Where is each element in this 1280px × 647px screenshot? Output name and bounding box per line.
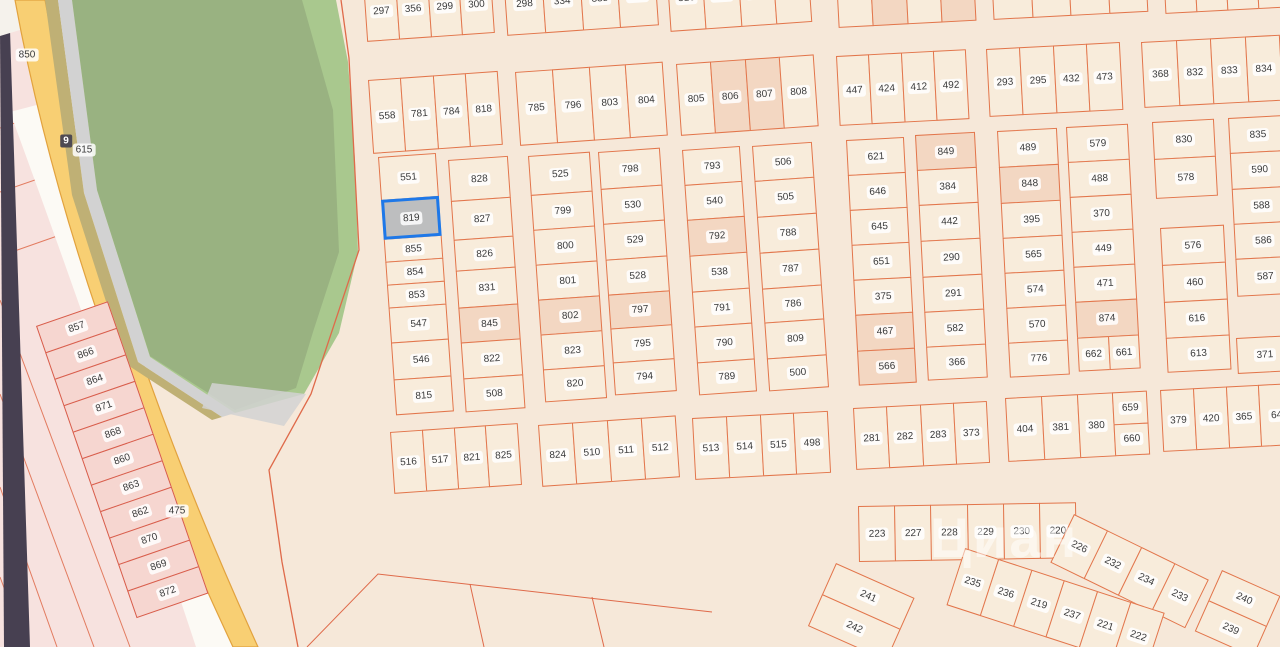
- plot-797[interactable]: 797: [608, 290, 672, 329]
- block-r2a: 558781784818: [368, 71, 503, 154]
- plot-unlabeled[interactable]: [990, 0, 1033, 20]
- plot-380[interactable]: 380: [1076, 392, 1116, 458]
- plot-551[interactable]: 551: [378, 153, 439, 201]
- plot-label: 510: [580, 445, 604, 460]
- plot-label: 833: [1218, 63, 1241, 77]
- plot-492[interactable]: 492: [933, 49, 970, 121]
- plot-786[interactable]: 786: [762, 284, 824, 323]
- plot-label: 233: [1167, 585, 1193, 607]
- plot-824[interactable]: 824: [538, 423, 577, 487]
- plot-223[interactable]: 223: [858, 505, 896, 562]
- plot-576[interactable]: 576: [1160, 225, 1226, 266]
- plot-613[interactable]: 613: [1166, 334, 1232, 372]
- plot-label: 281: [860, 431, 883, 445]
- plot-label: 229: [974, 525, 997, 538]
- plot-432[interactable]: 432: [1052, 44, 1090, 114]
- plot-546[interactable]: 546: [391, 339, 452, 381]
- plot-316[interactable]: 316: [666, 0, 707, 32]
- plot-label: 803: [598, 95, 622, 110]
- plot-796[interactable]: 796: [552, 67, 595, 143]
- plot-label: 514: [733, 439, 756, 453]
- plot-label: 785: [525, 100, 549, 115]
- block-c5r: 579488370449471874662661: [1066, 124, 1141, 372]
- plot-290[interactable]: 290: [921, 238, 983, 278]
- plot-label: 662: [1082, 347, 1105, 361]
- block-c3r: 506505788787786809500: [752, 142, 829, 392]
- plot-64[interactable]: 64: [1258, 383, 1280, 447]
- plot-label: 222: [1126, 626, 1152, 645]
- plot-849[interactable]: 849: [915, 132, 977, 171]
- plot-label: 538: [708, 265, 732, 280]
- plot-659[interactable]: 659: [1112, 391, 1148, 425]
- plot-511[interactable]: 511: [606, 418, 645, 482]
- plot-819[interactable]: 819: [381, 196, 442, 240]
- plot-label: 651: [870, 254, 893, 268]
- plot-unlabeled[interactable]: [1067, 0, 1110, 16]
- plot-299[interactable]: 299: [426, 0, 463, 37]
- plot-375[interactable]: 375: [853, 277, 913, 316]
- plot-579[interactable]: 579: [1066, 124, 1130, 163]
- plot-label: 860: [109, 450, 135, 470]
- plot-489[interactable]: 489: [997, 128, 1059, 168]
- plot-label: 298: [513, 0, 537, 11]
- plot-label: 525: [549, 167, 573, 182]
- block-c2r: 798530529528797795794: [598, 148, 677, 396]
- plot-373[interactable]: 373: [953, 401, 990, 465]
- block-r2e: 293295432473: [986, 42, 1123, 117]
- plot-label: 334: [550, 0, 574, 8]
- plot-label: 368: [1149, 67, 1172, 81]
- plot-label: 616: [1185, 312, 1208, 326]
- block-r1a: 297356299300: [363, 0, 495, 42]
- plot-365[interactable]: 365: [1225, 385, 1262, 449]
- plot-label: 395: [1020, 212, 1043, 226]
- plot-label: 825: [492, 448, 516, 463]
- plot-800[interactable]: 800: [533, 225, 597, 265]
- plot-506[interactable]: 506: [752, 142, 814, 182]
- plot-799[interactable]: 799: [531, 191, 595, 231]
- plot-318[interactable]: 318: [736, 0, 777, 27]
- plot-848[interactable]: 848: [999, 164, 1061, 204]
- plot-874[interactable]: 874: [1075, 299, 1139, 339]
- plot-label: 845: [478, 316, 502, 331]
- plot-substack: 659660: [1112, 391, 1150, 457]
- plot-label: 546: [409, 352, 433, 367]
- plot-825[interactable]: 825: [485, 423, 522, 487]
- plot-label: 500: [786, 366, 810, 381]
- plot-label: 293: [993, 75, 1016, 89]
- plot-298[interactable]: 298: [503, 0, 546, 36]
- plot-label: 854: [403, 264, 427, 279]
- plot-label: 864: [82, 370, 108, 390]
- plot-label: 818: [472, 102, 496, 117]
- plot-label: 797: [628, 303, 652, 318]
- plot-label: 791: [710, 300, 734, 315]
- plot-508[interactable]: 508: [463, 374, 525, 412]
- plot-label: 442: [938, 215, 961, 229]
- plot-label: 646: [866, 184, 889, 198]
- plot-label: 516: [397, 455, 421, 470]
- plot-label: 290: [940, 251, 963, 265]
- block-r1e: [990, 0, 1148, 20]
- plot-label: 857: [64, 317, 90, 337]
- block-c4l: 621646645651375467566: [846, 137, 917, 386]
- plot-300[interactable]: 300: [458, 0, 495, 35]
- plot-label: 834: [1252, 62, 1275, 76]
- plot-834[interactable]: 834: [1244, 35, 1280, 103]
- plot-label: 781: [408, 106, 432, 121]
- plot-794[interactable]: 794: [613, 358, 677, 395]
- plot-291[interactable]: 291: [922, 274, 984, 313]
- plot-795[interactable]: 795: [610, 324, 674, 363]
- plot-unlabeled[interactable]: [938, 0, 977, 23]
- plot-label: 291: [942, 286, 965, 300]
- plot-label: 853: [405, 287, 429, 302]
- plot-label: 830: [1172, 132, 1195, 146]
- plot-460[interactable]: 460: [1162, 262, 1228, 303]
- plot-label: 871: [91, 397, 117, 417]
- plot-label: 300: [465, 0, 489, 11]
- plot-label: 576: [1181, 238, 1204, 252]
- plot-582[interactable]: 582: [924, 309, 986, 348]
- plot-label: 317: [710, 0, 734, 2]
- plot-822[interactable]: 822: [461, 338, 523, 379]
- plot-label: 776: [1027, 352, 1050, 366]
- plot-336[interactable]: 336: [616, 0, 659, 28]
- plot-227[interactable]: 227: [894, 505, 932, 562]
- plot-578[interactable]: 578: [1154, 156, 1218, 199]
- plot-label: 862: [128, 503, 154, 523]
- plot-label: 798: [618, 162, 642, 177]
- plot-label: 219: [1026, 594, 1052, 613]
- plot-label: 804: [635, 93, 659, 108]
- plot-538[interactable]: 538: [689, 252, 749, 293]
- plot-label: 221: [1092, 615, 1118, 634]
- plot-label: 547: [407, 316, 431, 331]
- plot-660[interactable]: 660: [1114, 422, 1150, 456]
- plot-317[interactable]: 317: [701, 0, 742, 29]
- plot-790[interactable]: 790: [694, 323, 754, 364]
- plot-588[interactable]: 588: [1232, 186, 1280, 225]
- plot-label: 365: [1232, 410, 1255, 424]
- plot-651[interactable]: 651: [851, 242, 911, 281]
- plot-label: 822: [480, 352, 504, 367]
- plot-833[interactable]: 833: [1210, 37, 1249, 105]
- plot-661[interactable]: 661: [1108, 334, 1141, 370]
- plot-label: 660: [1120, 432, 1143, 446]
- plot-label: 506: [771, 155, 795, 170]
- plot-label: 790: [713, 336, 737, 351]
- plot-unlabeled[interactable]: [1224, 0, 1259, 11]
- plot-370[interactable]: 370: [1070, 194, 1134, 233]
- plot-label: 870: [137, 529, 163, 549]
- plot-label: 868: [100, 423, 126, 443]
- plot-label: 460: [1183, 275, 1206, 289]
- plot-label: 621: [864, 149, 887, 163]
- plot-505[interactable]: 505: [754, 177, 816, 218]
- plots-layer: 2973562993002983343353363163173183195587…: [0, 0, 1280, 647]
- block-bb1: 516517821825: [390, 423, 522, 494]
- plot-label: 529: [623, 233, 647, 248]
- plot-label: 488: [1088, 171, 1111, 185]
- plot-528[interactable]: 528: [606, 255, 670, 295]
- plot-802[interactable]: 802: [538, 295, 602, 335]
- plot-label: 283: [926, 427, 949, 441]
- plot-label: 869: [146, 556, 172, 576]
- plot-label: 375: [872, 289, 895, 303]
- plot-281[interactable]: 281: [853, 406, 890, 470]
- plot-513[interactable]: 513: [692, 416, 730, 480]
- plot-788[interactable]: 788: [757, 213, 819, 254]
- plot-498[interactable]: 498: [793, 411, 831, 475]
- plot-label: 832: [1183, 65, 1206, 79]
- plot-unlabeled[interactable]: [1255, 0, 1280, 9]
- plot-label: 815: [412, 388, 436, 403]
- plot-283[interactable]: 283: [919, 403, 956, 467]
- plot-808[interactable]: 808: [778, 54, 818, 128]
- plot-label: 794: [633, 370, 657, 385]
- block-c4r: 849384442290291582366: [915, 132, 988, 381]
- plot-label: 530: [621, 197, 645, 212]
- plot-832[interactable]: 832: [1175, 38, 1214, 106]
- plot-412[interactable]: 412: [900, 51, 937, 123]
- plot-540[interactable]: 540: [684, 181, 744, 221]
- plot-803[interactable]: 803: [588, 64, 631, 140]
- plot-789[interactable]: 789: [697, 358, 757, 395]
- plot-unlabeled[interactable]: [1028, 0, 1071, 18]
- plot-646[interactable]: 646: [848, 172, 908, 211]
- plot-label: 788: [776, 226, 800, 241]
- block-r1c: 316317318319: [666, 0, 812, 32]
- plot-368[interactable]: 368: [1141, 40, 1180, 108]
- plot-488[interactable]: 488: [1068, 159, 1132, 198]
- plot-442[interactable]: 442: [919, 202, 981, 242]
- block-fan4: 241242: [808, 563, 915, 647]
- plot-label: 467: [873, 325, 896, 339]
- plot-590[interactable]: 590: [1230, 150, 1280, 190]
- plot-label: 799: [551, 203, 575, 218]
- cadastral-map[interactable]: Циан 29735629930029833433533631631731831…: [0, 0, 1280, 647]
- plot-label: 239: [1218, 618, 1244, 639]
- plot-334[interactable]: 334: [541, 0, 584, 33]
- plot-label: 297: [370, 4, 394, 19]
- plot-818[interactable]: 818: [465, 71, 503, 147]
- plot-525[interactable]: 525: [528, 152, 593, 196]
- plot-label: 863: [119, 476, 145, 496]
- plot-unlabeled[interactable]: [835, 0, 874, 28]
- plot-label: 226: [1066, 536, 1092, 558]
- plot-label: 874: [1095, 312, 1118, 326]
- plot-293[interactable]: 293: [986, 47, 1024, 117]
- block-c6c: 835590588586587: [1228, 115, 1280, 297]
- plot-label: 809: [784, 332, 808, 347]
- plot-label: 370: [1090, 206, 1113, 220]
- plot-791[interactable]: 791: [692, 288, 752, 328]
- plot-379[interactable]: 379: [1160, 388, 1197, 452]
- plot-804[interactable]: 804: [625, 62, 668, 138]
- plot-547[interactable]: 547: [389, 304, 449, 344]
- plot-297[interactable]: 297: [363, 0, 400, 42]
- plot-793[interactable]: 793: [682, 146, 742, 186]
- plot-319[interactable]: 319: [771, 0, 812, 24]
- plot-776[interactable]: 776: [1008, 340, 1070, 378]
- plot-335[interactable]: 335: [578, 0, 621, 31]
- plot-645[interactable]: 645: [850, 207, 910, 246]
- plot-label: 540: [703, 194, 727, 209]
- plot-473[interactable]: 473: [1086, 42, 1124, 112]
- plot-unlabeled[interactable]: [1193, 0, 1228, 12]
- plot-label: 228: [938, 526, 961, 539]
- plot-616[interactable]: 616: [1164, 299, 1230, 339]
- plot-785[interactable]: 785: [515, 69, 558, 145]
- plot-570[interactable]: 570: [1006, 305, 1068, 344]
- plot-586[interactable]: 586: [1234, 221, 1280, 260]
- plot-809[interactable]: 809: [764, 318, 826, 359]
- plot-827[interactable]: 827: [451, 197, 514, 241]
- plot-424[interactable]: 424: [868, 53, 905, 125]
- plot-815[interactable]: 815: [394, 375, 454, 415]
- block-r2b: 785796803804: [515, 62, 668, 146]
- plot-514[interactable]: 514: [726, 414, 764, 478]
- plot-label: 831: [475, 280, 499, 295]
- plot-label: 827: [470, 211, 494, 226]
- plot-label: 826: [473, 246, 497, 261]
- plot-230[interactable]: 230: [1003, 503, 1041, 560]
- plot-label: 242: [841, 617, 867, 638]
- plot-label: 558: [375, 108, 399, 123]
- plot-500[interactable]: 500: [767, 354, 829, 391]
- plot-label: 512: [648, 440, 672, 455]
- plot-828[interactable]: 828: [448, 156, 511, 202]
- plot-587[interactable]: 587: [1235, 256, 1280, 297]
- plot-label: 513: [699, 441, 722, 455]
- plot-label: 835: [1246, 127, 1269, 141]
- plot-label: 787: [779, 262, 803, 277]
- plot-unlabeled[interactable]: [869, 0, 908, 26]
- plot-label: 508: [483, 386, 507, 401]
- plot-label: 820: [563, 377, 587, 392]
- plot-label: 566: [875, 360, 898, 374]
- plot-295[interactable]: 295: [1019, 45, 1057, 115]
- plot-label: 808: [787, 84, 811, 99]
- plot-label: 613: [1187, 347, 1210, 361]
- plot-467[interactable]: 467: [855, 312, 915, 352]
- plot-820[interactable]: 820: [543, 365, 607, 402]
- plot-662[interactable]: 662: [1077, 336, 1110, 372]
- plot-label: 235: [960, 572, 986, 591]
- block-pinkcol: 857866864871868860863862870869872: [36, 301, 208, 618]
- plot-574[interactable]: 574: [1004, 270, 1066, 309]
- plot-282[interactable]: 282: [886, 404, 923, 468]
- block-bb2: 824510511512: [538, 415, 680, 486]
- plot-529[interactable]: 529: [603, 219, 667, 260]
- plot-label: 223: [866, 527, 889, 540]
- plot-label: 373: [960, 426, 983, 440]
- plot-356[interactable]: 356: [395, 0, 432, 40]
- plot-label: 578: [1174, 170, 1197, 184]
- plot-835[interactable]: 835: [1228, 115, 1280, 154]
- plot-label: 227: [902, 526, 925, 539]
- plot-845[interactable]: 845: [458, 303, 520, 343]
- plot-label: 64: [1268, 408, 1280, 422]
- plot-label: 570: [1025, 317, 1048, 331]
- plot-label: 661: [1112, 345, 1135, 359]
- plot-449[interactable]: 449: [1071, 229, 1135, 268]
- plot-512[interactable]: 512: [640, 415, 679, 479]
- plot-366[interactable]: 366: [926, 344, 988, 381]
- plot-label: 515: [767, 437, 790, 451]
- block-bb4: 281282283373: [853, 401, 990, 470]
- plot-447[interactable]: 447: [836, 54, 873, 126]
- plot-384[interactable]: 384: [917, 167, 979, 206]
- plot-798[interactable]: 798: [598, 148, 662, 190]
- plot-565[interactable]: 565: [1003, 235, 1065, 274]
- plot-371[interactable]: 371: [1236, 335, 1280, 374]
- plot-787[interactable]: 787: [759, 249, 821, 290]
- plot-label: 432: [1060, 71, 1083, 85]
- plot-label: 498: [800, 436, 823, 450]
- block-c3l: 793540792538791790789: [682, 146, 757, 395]
- plot-label: 381: [1049, 420, 1072, 434]
- plot-label: 380: [1085, 418, 1108, 432]
- plot-label: 792: [705, 229, 729, 244]
- plot-unlabeled[interactable]: [1105, 0, 1148, 14]
- plot-510[interactable]: 510: [572, 420, 611, 484]
- plot-395[interactable]: 395: [1001, 200, 1063, 239]
- plot-566[interactable]: 566: [857, 348, 917, 386]
- block-c5l: 489848395565574570776: [997, 128, 1070, 378]
- plot-801[interactable]: 801: [536, 260, 600, 300]
- plot-unlabeled[interactable]: [903, 0, 942, 24]
- plot-label: 420: [1200, 411, 1223, 425]
- plot-label: 802: [558, 308, 582, 323]
- plot-404[interactable]: 404: [1005, 396, 1045, 462]
- plot-label: 574: [1024, 282, 1047, 296]
- plot-substack: 662661: [1077, 334, 1141, 371]
- plot-label: 801: [556, 273, 580, 288]
- plot-420[interactable]: 420: [1193, 387, 1230, 451]
- plot-830[interactable]: 830: [1152, 119, 1216, 160]
- block-r1f: [1162, 0, 1280, 14]
- block-r2f: 368832833834: [1141, 35, 1280, 108]
- plot-530[interactable]: 530: [601, 185, 665, 225]
- plot-label: 848: [1018, 177, 1041, 191]
- plot-792[interactable]: 792: [687, 216, 747, 257]
- plot-823[interactable]: 823: [540, 330, 604, 370]
- block-c1r: 828827826831845822508: [448, 156, 526, 413]
- plot-label: 473: [1093, 70, 1116, 84]
- plot-label: 793: [700, 159, 724, 174]
- block-r2d: 447424412492: [836, 49, 969, 126]
- plot-label: 505: [774, 190, 798, 205]
- plot-381[interactable]: 381: [1041, 394, 1081, 460]
- plot-label: 404: [1013, 422, 1036, 436]
- plot-label: 805: [684, 91, 708, 106]
- plot-label: 240: [1231, 588, 1257, 609]
- plot-label: 492: [939, 78, 962, 92]
- plot-621[interactable]: 621: [846, 137, 906, 176]
- plot-label: 366: [945, 355, 968, 369]
- plot-label: 551: [397, 170, 421, 185]
- plot-831[interactable]: 831: [456, 267, 519, 309]
- plot-515[interactable]: 515: [759, 413, 797, 477]
- block-c6a: 830578: [1152, 119, 1218, 199]
- plot-label: 384: [936, 179, 959, 193]
- plot-label: 587: [1254, 269, 1277, 283]
- plot-471[interactable]: 471: [1073, 264, 1137, 303]
- plot-unlabeled[interactable]: [1162, 0, 1197, 14]
- plot-label: 299: [433, 0, 457, 14]
